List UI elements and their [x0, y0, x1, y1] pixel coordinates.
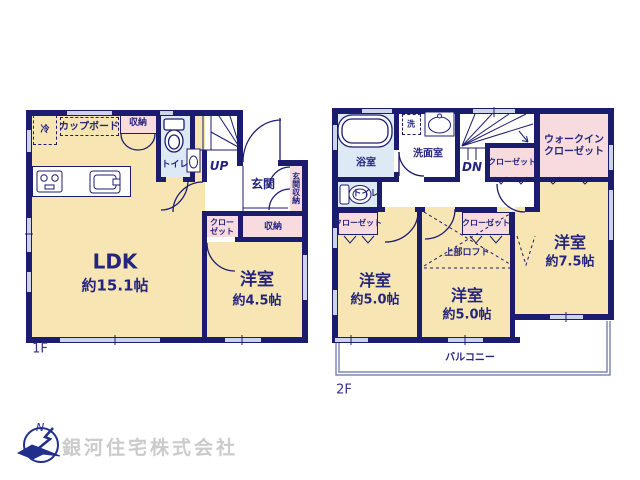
label-toilet-1f: トイレ	[161, 160, 188, 170]
stove-icon	[37, 171, 62, 192]
compass-north-label: N	[36, 421, 44, 434]
kitchen-sink-icon	[90, 171, 120, 193]
balcony-rails	[336, 321, 610, 375]
label-stairs-dn: DN	[462, 161, 482, 175]
label-bedroom-left-2f: 洋室	[359, 272, 391, 290]
label-bedroom-1f-size: 約4.5帖	[232, 295, 281, 310]
label-bedroom-right-2f: 洋室	[554, 234, 586, 252]
label-storage-top-1f: 収納	[129, 118, 147, 128]
label-fridge: 冷	[40, 125, 49, 135]
label-bedroom-left-2f-size: 約5.0帖	[350, 294, 399, 309]
label-closet-stairs-2f: クローゼット	[488, 157, 536, 166]
washbasin-icon	[425, 112, 454, 136]
label-cupboard: カップボード	[59, 121, 119, 133]
toilet-icon-1f	[164, 119, 184, 152]
label-entrance: 玄関	[251, 178, 275, 192]
label-balcony: バルコニー	[445, 352, 495, 364]
label-washroom: 洗面室	[413, 148, 443, 160]
label-bedroom-right-2f-size: 約7.5帖	[545, 256, 594, 271]
label-bedroom-1f: 洋室	[240, 271, 274, 291]
label-entrance-storage: 玄関収納	[291, 172, 300, 204]
label-laundry: 洗	[407, 119, 415, 128]
label-wic: ウォークイン クローゼット	[544, 135, 604, 158]
label-closet-mid-2f: クローゼット	[462, 218, 510, 227]
label-bath: 浴室	[356, 157, 376, 169]
label-floor-2f: 2F	[336, 384, 352, 399]
stairs-1f	[195, 116, 240, 150]
door-arcs-1f	[121, 134, 290, 271]
label-loft: 上部ロフト	[444, 248, 489, 258]
company-watermark: 銀河住宅株式会社	[62, 433, 238, 460]
hand-basin-icon-1f	[187, 149, 200, 172]
entrance-door-arc	[243, 118, 281, 162]
label-ldk: LDK	[93, 251, 138, 274]
label-bedroom-mid-2f-size: 約5.0帖	[442, 309, 491, 324]
label-ldk-size: 約15.1帖	[81, 277, 148, 294]
label-floor-1f: 1F	[32, 343, 48, 358]
label-closet-1f: クロー ゼット	[210, 218, 234, 236]
floorplan-linework	[0, 0, 640, 480]
label-toilet-2f: トイレ	[352, 189, 379, 199]
label-bedroom-mid-2f: 洋室	[451, 287, 483, 305]
label-storage-1f: 収納	[264, 222, 282, 232]
stairs-2f	[460, 114, 533, 160]
bathtub-icon	[338, 115, 392, 147]
floorplan-canvas: 冷 カップボード 収納 トイレ UP 玄関 玄関収納 クロー ゼット 収納 LD…	[0, 0, 640, 480]
label-closet-left-2f: クローゼット	[334, 218, 382, 227]
label-stairs-up: UP	[210, 160, 229, 174]
